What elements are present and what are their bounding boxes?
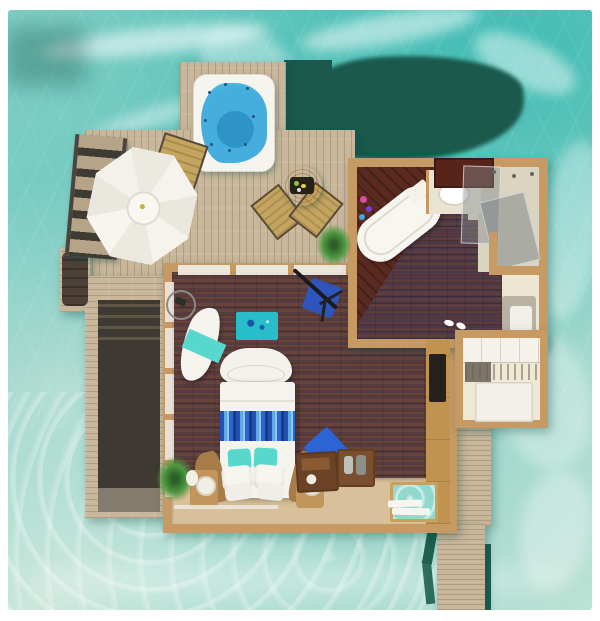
jacuzzi-jet bbox=[252, 115, 255, 118]
recess-ledge bbox=[98, 488, 160, 512]
pillow-white bbox=[256, 483, 285, 502]
scene bbox=[8, 10, 592, 610]
jacuzzi-jet bbox=[224, 83, 227, 86]
duvet-fold bbox=[220, 400, 295, 402]
deck-towel bbox=[388, 499, 422, 507]
wc-divider-wall bbox=[489, 232, 497, 275]
kettle bbox=[356, 455, 366, 475]
wc-fixture bbox=[510, 306, 532, 332]
potted-plant bbox=[316, 224, 352, 266]
organizer-shelf bbox=[301, 457, 330, 470]
bed-runner bbox=[220, 411, 295, 441]
kettle bbox=[344, 456, 353, 474]
hanging-clothes-dark bbox=[465, 362, 491, 382]
villa-floorplan-photo bbox=[8, 10, 592, 610]
jetty-upper bbox=[453, 424, 491, 526]
coffee-mug bbox=[306, 474, 317, 485]
tray-food bbox=[297, 188, 301, 192]
jacuzzi-water bbox=[201, 83, 267, 163]
curved-sofa bbox=[220, 348, 292, 386]
accent-rug bbox=[236, 312, 278, 340]
jacuzzi-jet bbox=[210, 143, 213, 146]
deck-towel bbox=[392, 508, 430, 516]
screenshot-canvas bbox=[0, 0, 600, 621]
toiletry-item bbox=[360, 196, 367, 203]
shower-fixture bbox=[512, 174, 516, 178]
sunken-deck-recess bbox=[98, 300, 160, 512]
bedside-lamp bbox=[196, 476, 216, 496]
tray-food bbox=[301, 184, 306, 188]
jacuzzi-jet bbox=[228, 149, 231, 152]
jacuzzi-jet bbox=[208, 91, 211, 94]
tray-food bbox=[294, 181, 299, 186]
glass-door-frame-top bbox=[178, 265, 350, 275]
wc-divider-wall bbox=[493, 266, 539, 275]
jacuzzi-shell bbox=[193, 74, 275, 172]
jacuzzi-jet bbox=[246, 87, 249, 90]
storage-chest bbox=[475, 382, 533, 422]
recess-steps bbox=[98, 304, 160, 348]
breakfast-tray bbox=[290, 177, 314, 194]
deck-daybed bbox=[62, 252, 88, 306]
jacuzzi-jet bbox=[244, 143, 247, 146]
shower-fixture bbox=[492, 170, 496, 174]
jacuzzi-jet bbox=[204, 119, 207, 122]
rolled-towel bbox=[186, 470, 198, 486]
tv-screen bbox=[429, 354, 446, 402]
deep-water-patch bbox=[8, 26, 86, 86]
minibar-caddy bbox=[337, 449, 375, 487]
closet-cabinet-doors bbox=[463, 338, 540, 363]
toiletry-item bbox=[359, 214, 365, 220]
shower-fixture bbox=[530, 172, 534, 176]
jetty-walkway bbox=[437, 524, 485, 610]
desk-organizer bbox=[295, 451, 339, 493]
toiletry-item bbox=[366, 206, 372, 212]
bottom-door-rail bbox=[174, 505, 278, 509]
